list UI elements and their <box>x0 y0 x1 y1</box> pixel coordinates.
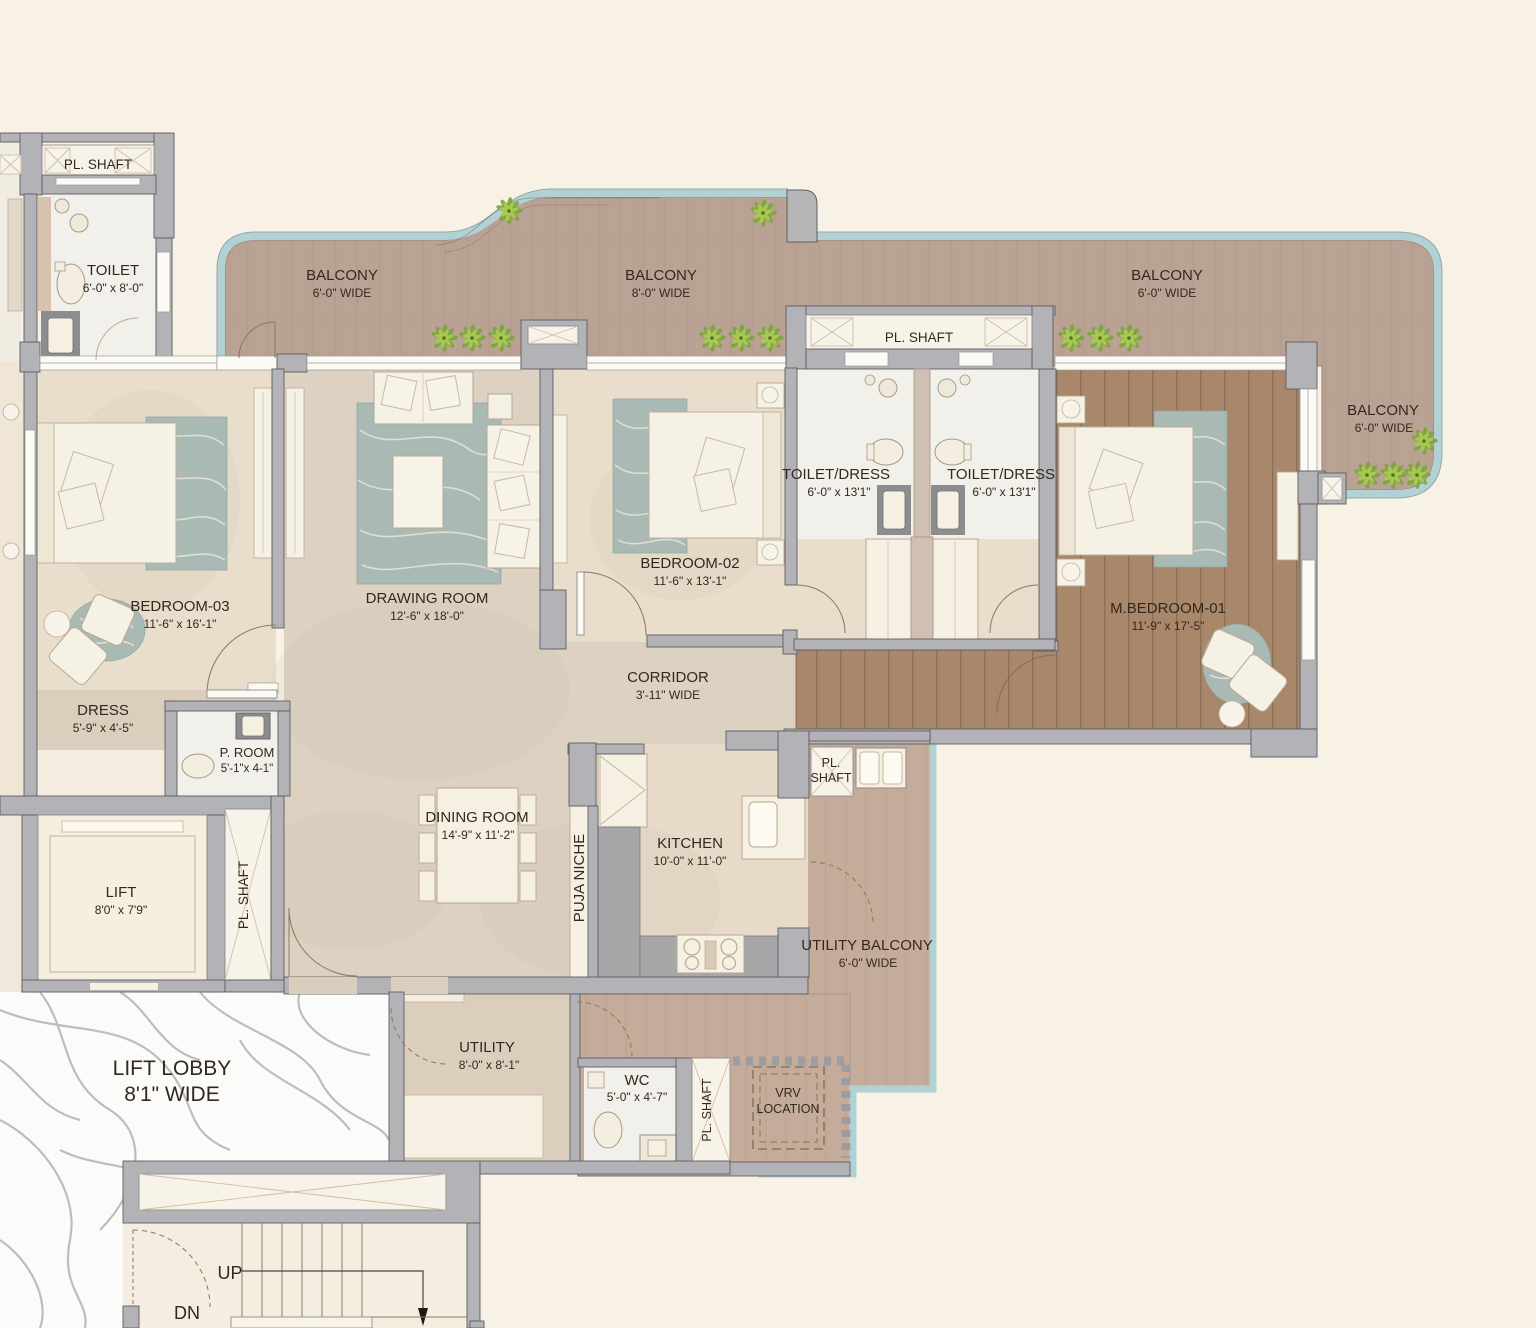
svg-text:6'-0" WIDE: 6'-0" WIDE <box>1138 286 1197 300</box>
svg-text:BEDROOM-03: BEDROOM-03 <box>130 598 229 615</box>
svg-text:8'0" x 7'9": 8'0" x 7'9" <box>95 903 147 917</box>
svg-text:14'-9" x 11'-2": 14'-9" x 11'-2" <box>442 828 515 842</box>
svg-text:DN: DN <box>174 1303 200 1323</box>
svg-text:KITCHEN: KITCHEN <box>657 835 723 852</box>
svg-text:TOILET/DRESS: TOILET/DRESS <box>947 466 1055 483</box>
svg-text:BALCONY: BALCONY <box>306 267 378 284</box>
svg-text:PL. SHAFT: PL. SHAFT <box>64 157 132 172</box>
svg-text:BALCONY: BALCONY <box>1347 402 1419 419</box>
svg-text:TOILET: TOILET <box>87 262 139 279</box>
svg-text:VRV: VRV <box>775 1086 801 1100</box>
svg-text:3'-11" WIDE: 3'-11" WIDE <box>636 688 700 702</box>
svg-text:LIFT LOBBY: LIFT LOBBY <box>113 1057 232 1080</box>
svg-text:6'-0" x 13'1": 6'-0" x 13'1" <box>972 485 1035 499</box>
svg-text:P. ROOM: P. ROOM <box>220 745 275 760</box>
svg-text:BALCONY: BALCONY <box>1131 267 1203 284</box>
svg-text:8'-0" WIDE: 8'-0" WIDE <box>632 286 691 300</box>
svg-text:11'-9" x 17'-5": 11'-9" x 17'-5" <box>1132 619 1205 633</box>
svg-text:5'-9" x 4'-5": 5'-9" x 4'-5" <box>73 721 133 735</box>
svg-text:8'1" WIDE: 8'1" WIDE <box>124 1083 219 1106</box>
svg-text:6'-0" x 13'1": 6'-0" x 13'1" <box>807 485 870 499</box>
svg-text:PL.: PL. <box>822 756 841 770</box>
svg-text:12'-6" x 18'-0": 12'-6" x 18'-0" <box>390 609 464 623</box>
svg-text:6'-0" WIDE: 6'-0" WIDE <box>839 956 898 970</box>
svg-text:PL. SHAFT: PL. SHAFT <box>236 861 251 929</box>
svg-text:DINING ROOM: DINING ROOM <box>425 809 528 826</box>
svg-text:UP: UP <box>217 1263 242 1283</box>
svg-text:UTILITY BALCONY: UTILITY BALCONY <box>801 937 932 954</box>
svg-text:10'-0" x 11'-0": 10'-0" x 11'-0" <box>654 854 727 868</box>
svg-text:5'-1"x 4-1": 5'-1"x 4-1" <box>221 763 274 775</box>
svg-text:8'-0" x 8'-1": 8'-0" x 8'-1" <box>459 1058 519 1072</box>
svg-text:UTILITY: UTILITY <box>459 1039 515 1056</box>
svg-text:BALCONY: BALCONY <box>625 267 697 284</box>
svg-text:DRESS: DRESS <box>77 702 129 719</box>
svg-text:M.BEDROOM-01: M.BEDROOM-01 <box>1110 600 1226 617</box>
svg-text:SHAFT: SHAFT <box>811 771 852 785</box>
svg-text:11'-6" x 13'-1": 11'-6" x 13'-1" <box>654 574 727 588</box>
svg-text:6'-0" x 8'-0": 6'-0" x 8'-0" <box>83 281 143 295</box>
svg-text:6'-0" WIDE: 6'-0" WIDE <box>1355 421 1414 435</box>
svg-text:PL. SHAFT: PL. SHAFT <box>700 1078 714 1142</box>
svg-text:DRAWING ROOM: DRAWING ROOM <box>366 590 489 607</box>
svg-text:5'-0" x 4'-7": 5'-0" x 4'-7" <box>607 1090 667 1104</box>
svg-text:LOCATION: LOCATION <box>757 1102 820 1116</box>
svg-text:LIFT: LIFT <box>106 884 137 901</box>
svg-text:TOILET/DRESS: TOILET/DRESS <box>782 466 890 483</box>
svg-text:BEDROOM-02: BEDROOM-02 <box>640 555 739 572</box>
svg-text:11'-6" x 16'-1": 11'-6" x 16'-1" <box>144 617 217 631</box>
svg-text:PUJA NICHE: PUJA NICHE <box>571 834 588 922</box>
svg-text:6'-0" WIDE: 6'-0" WIDE <box>313 286 372 300</box>
svg-text:WC: WC <box>625 1072 650 1089</box>
svg-text:PL. SHAFT: PL. SHAFT <box>885 330 953 345</box>
svg-text:CORRIDOR: CORRIDOR <box>627 669 709 686</box>
